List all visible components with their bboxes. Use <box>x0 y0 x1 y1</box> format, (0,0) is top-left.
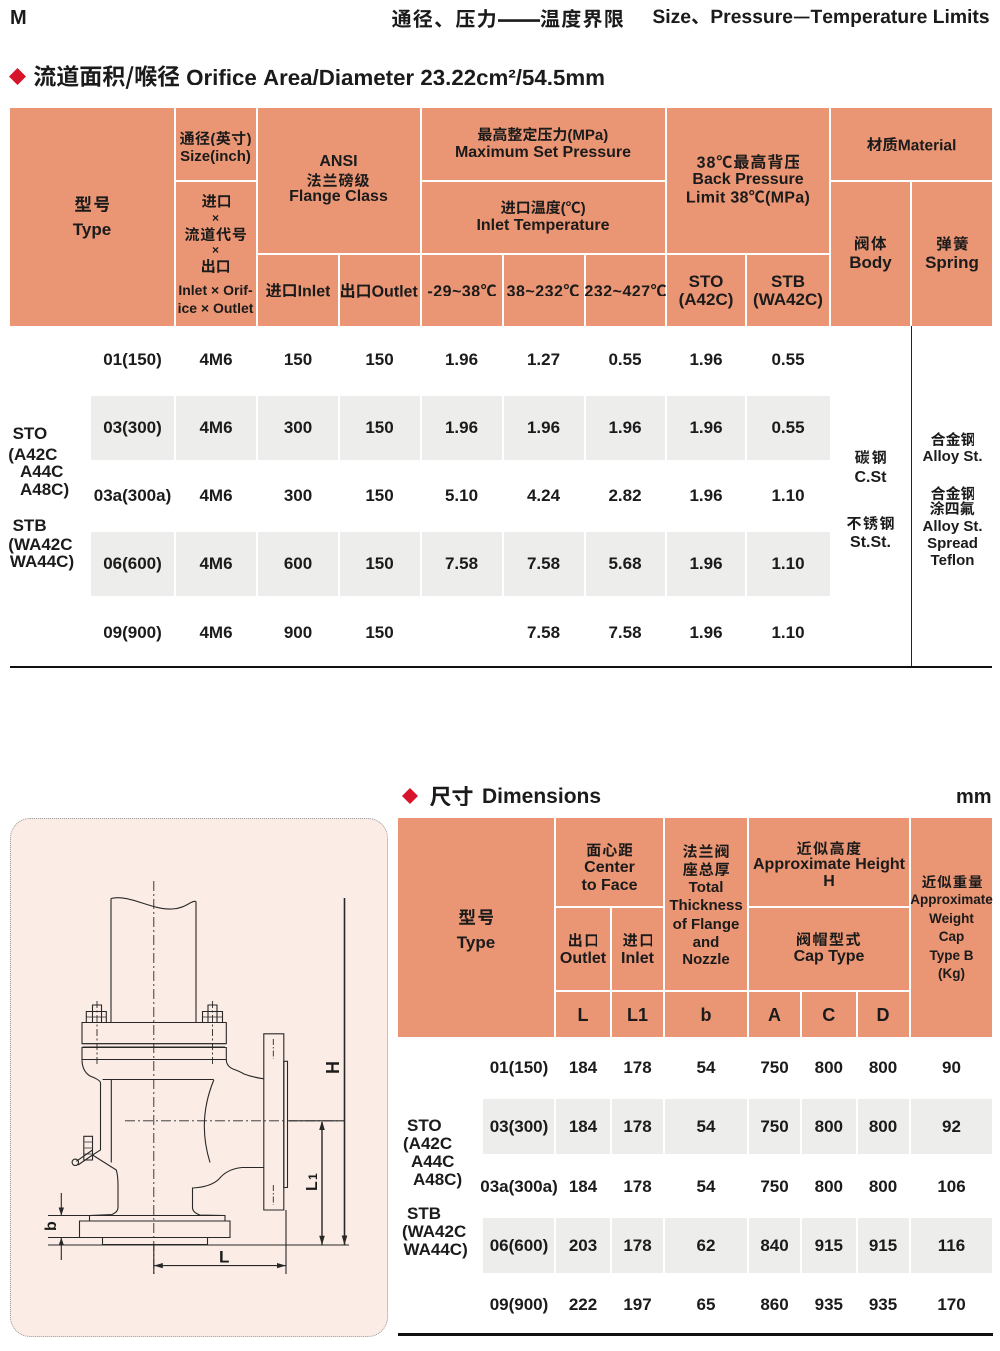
svg-text:b: b <box>43 1221 60 1231</box>
svg-text:H: H <box>323 1061 343 1074</box>
svg-text:L: L <box>219 1248 229 1267</box>
svg-text:L: L <box>304 1181 321 1191</box>
svg-text:1: 1 <box>306 1173 320 1180</box>
